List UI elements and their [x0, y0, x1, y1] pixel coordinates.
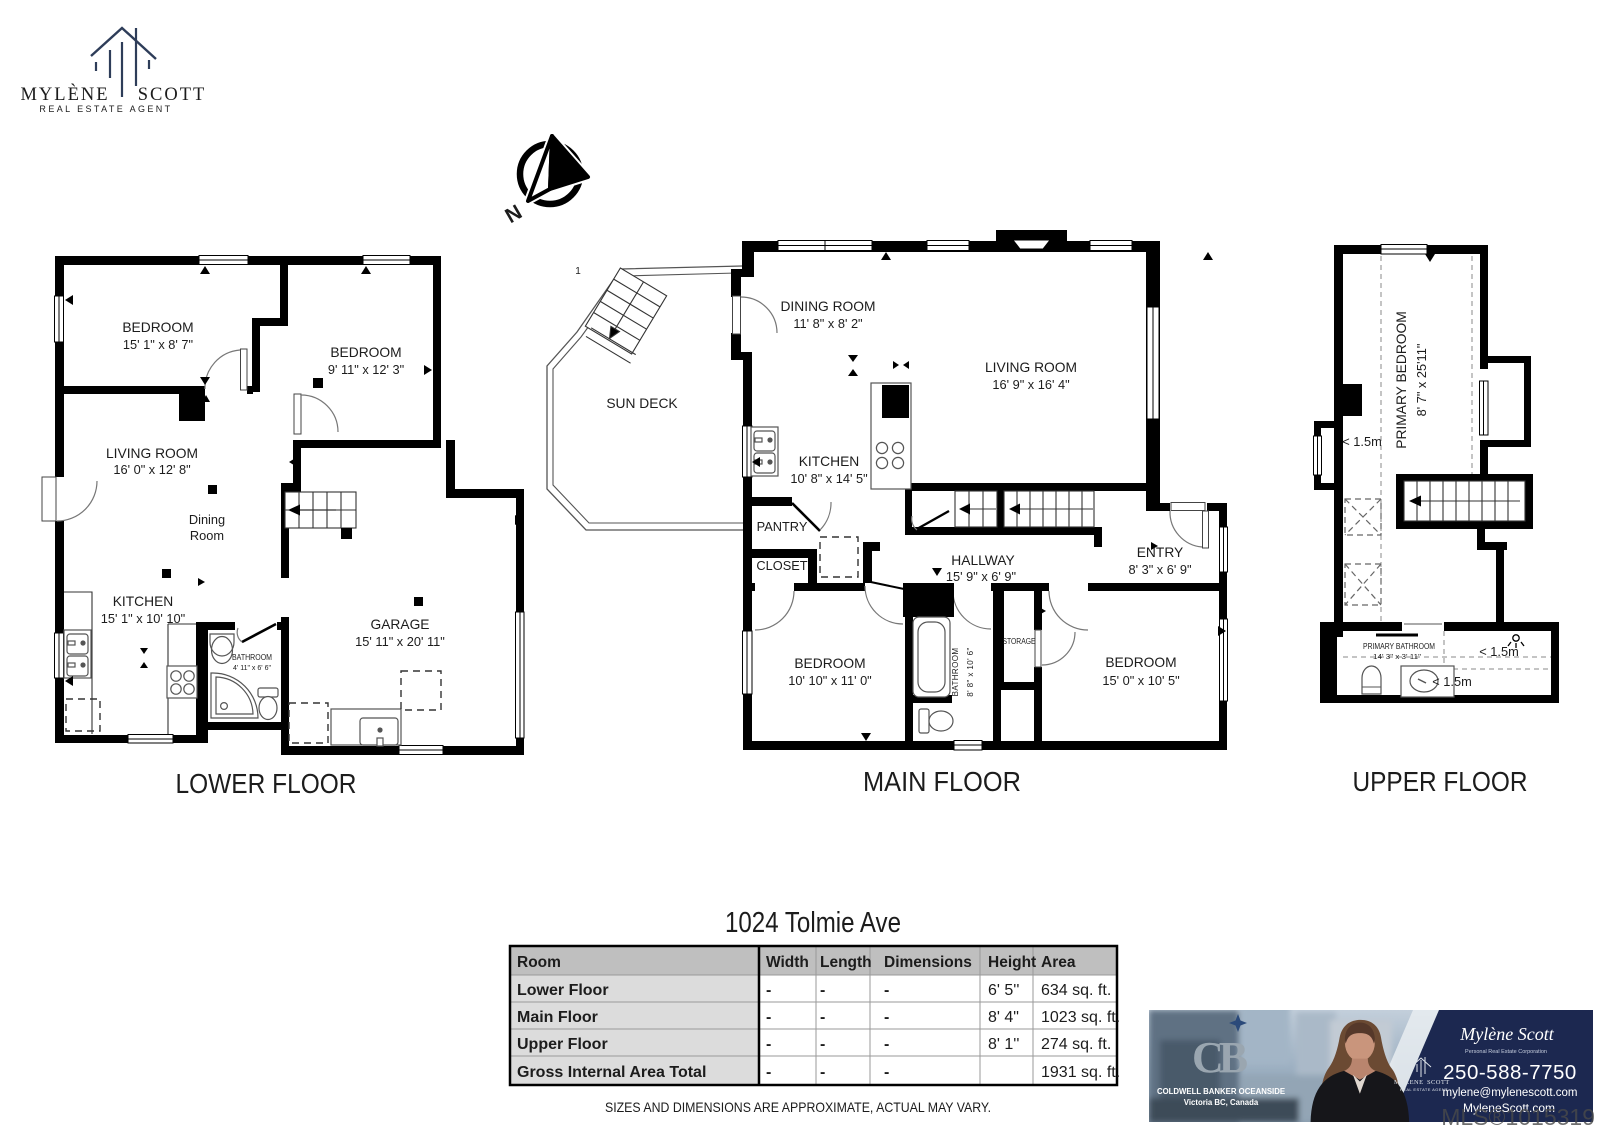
svg-text:CB: CB	[1192, 1033, 1248, 1082]
svg-text:CLOSET: CLOSET	[756, 558, 807, 573]
svg-text:mylene@mylenescott.com: mylene@mylenescott.com	[1442, 1087, 1577, 1099]
svg-text:BEDROOM: BEDROOM	[1105, 655, 1176, 670]
svg-text:16' 0" x 12' 8": 16' 0" x 12' 8"	[113, 462, 190, 477]
svg-text:PANTRY: PANTRY	[757, 519, 808, 534]
svg-text:8' 7" x 25'11": 8' 7" x 25'11"	[1414, 344, 1429, 417]
svg-text:GARAGE: GARAGE	[370, 617, 429, 632]
svg-text:Victoria BC, Canada: Victoria BC, Canada	[1184, 1098, 1259, 1107]
svg-text:Dining: Dining	[189, 512, 225, 527]
svg-text:4' 11" x 6' 6": 4' 11" x 6' 6"	[233, 665, 272, 672]
svg-text:-: -	[766, 982, 771, 999]
svg-text:PRIMARY BATHROOM: PRIMARY BATHROOM	[1363, 642, 1435, 651]
svg-text:-: -	[820, 982, 825, 999]
svg-text:HALLWAY: HALLWAY	[951, 553, 1014, 568]
svg-text:1023 sq. ft.: 1023 sq. ft.	[1041, 1009, 1120, 1026]
svg-text:11' 8" x 8' 2": 11' 8" x 8' 2"	[793, 316, 862, 331]
svg-text:Dimensions: Dimensions	[884, 954, 972, 971]
svg-text:SUN DECK: SUN DECK	[606, 396, 678, 411]
svg-text:COLDWELL BANKER OCEANSIDE: COLDWELL BANKER OCEANSIDE	[1157, 1087, 1285, 1096]
svg-text:15' 11" x 20' 11": 15' 11" x 20' 11"	[355, 634, 445, 649]
svg-text:REAL ESTATE AGENT: REAL ESTATE AGENT	[1400, 1087, 1448, 1092]
svg-text:8' 8" x 10' 6": 8' 8" x 10' 6"	[966, 647, 975, 696]
svg-text:-: -	[820, 1064, 825, 1081]
svg-text:UPPER FLOOR: UPPER FLOOR	[1353, 766, 1528, 797]
svg-text:Width: Width	[766, 954, 809, 971]
svg-text:-: -	[766, 1036, 771, 1053]
svg-text:1: 1	[575, 266, 581, 277]
svg-text:10' 8" x 14' 5": 10' 8" x 14' 5"	[790, 471, 867, 486]
svg-text:Personal Real Estate Corporati: Personal Real Estate Corporation	[1465, 1049, 1547, 1055]
svg-text:Upper Floor: Upper Floor	[517, 1036, 608, 1053]
svg-text:6' 5'': 6' 5''	[988, 982, 1019, 999]
svg-text:STORAGE: STORAGE	[1003, 637, 1036, 646]
svg-text:10' 10" x 11' 0": 10' 10" x 11' 0"	[788, 673, 871, 688]
svg-text:15' 1" x 8' 7": 15' 1" x 8' 7"	[123, 337, 193, 352]
svg-text:KITCHEN: KITCHEN	[799, 454, 860, 469]
svg-text:-: -	[820, 1036, 825, 1053]
svg-text:BATHROOM: BATHROOM	[951, 648, 960, 697]
svg-text:BATHROOM: BATHROOM	[232, 653, 272, 662]
svg-text:-: -	[884, 982, 889, 999]
svg-text:SIZES AND DIMENSIONS ARE APPRO: SIZES AND DIMENSIONS ARE APPROXIMATE, AC…	[605, 1099, 991, 1115]
svg-text:DINING ROOM: DINING ROOM	[780, 299, 875, 314]
svg-text:REAL ESTATE AGENT: REAL ESTATE AGENT	[39, 104, 172, 114]
svg-text:15' 1" x 10' 10": 15' 1" x 10' 10"	[101, 611, 185, 626]
svg-text:Area: Area	[1041, 954, 1076, 971]
svg-text:1024 Tolmie Ave: 1024 Tolmie Ave	[725, 907, 901, 939]
svg-text:< 1.5m: < 1.5m	[1479, 644, 1518, 659]
svg-text:274 sq. ft.: 274 sq. ft.	[1041, 1036, 1111, 1053]
svg-text:8' 3" x 6' 9": 8' 3" x 6' 9"	[1128, 562, 1191, 577]
svg-text:Room: Room	[190, 528, 224, 543]
svg-text:Room: Room	[517, 954, 561, 971]
svg-text:< 1.5m: < 1.5m	[1432, 674, 1471, 689]
svg-text:MAIN FLOOR: MAIN FLOOR	[863, 766, 1021, 797]
svg-text:MYLENE: MYLENE	[1394, 1079, 1423, 1086]
svg-text:LIVING ROOM: LIVING ROOM	[985, 360, 1077, 375]
svg-text:634 sq. ft.: 634 sq. ft.	[1041, 982, 1111, 999]
svg-text:8' 1'': 8' 1''	[988, 1036, 1019, 1053]
svg-text:9' 11" x 12' 3": 9' 11" x 12' 3"	[328, 362, 404, 377]
svg-text:1931 sq. ft.: 1931 sq. ft.	[1041, 1064, 1120, 1081]
svg-text:Height: Height	[988, 954, 1036, 971]
svg-text:-: -	[820, 1009, 825, 1026]
svg-text:BEDROOM: BEDROOM	[330, 345, 401, 360]
svg-text:PRIMARY BEDROOM: PRIMARY BEDROOM	[1394, 311, 1409, 448]
svg-text:-: -	[884, 1064, 889, 1081]
svg-text:MYLÈNE: MYLÈNE	[20, 83, 109, 105]
svg-text:8' 4": 8' 4"	[988, 1009, 1019, 1026]
svg-text:-: -	[884, 1036, 889, 1053]
svg-text:LOWER FLOOR: LOWER FLOOR	[176, 768, 357, 799]
svg-text:250-588-7750: 250-588-7750	[1443, 1061, 1577, 1084]
svg-text:KITCHEN: KITCHEN	[113, 594, 174, 609]
svg-text:Lower Floor: Lower Floor	[517, 982, 609, 999]
svg-text:SCOTT: SCOTT	[138, 85, 207, 105]
svg-text:16' 9" x 16' 4": 16' 9" x 16' 4"	[992, 377, 1069, 392]
svg-text:Main Floor: Main Floor	[517, 1009, 598, 1026]
svg-text:< 1.5m: < 1.5m	[1342, 434, 1381, 449]
svg-text:15' 9" x 6' 9": 15' 9" x 6' 9"	[946, 569, 1016, 584]
svg-text:-: -	[766, 1064, 771, 1081]
svg-text:Gross Internal Area Total: Gross Internal Area Total	[517, 1064, 706, 1081]
svg-text:14' 3" x 3' 11": 14' 3" x 3' 11"	[1373, 654, 1422, 661]
svg-text:-: -	[766, 1009, 771, 1026]
svg-text:LIVING ROOM: LIVING ROOM	[106, 446, 198, 461]
svg-text:ENTRY: ENTRY	[1137, 545, 1184, 560]
svg-text:Mylène Scott: Mylène Scott	[1459, 1024, 1554, 1044]
svg-text:Length: Length	[820, 954, 872, 971]
svg-text:BEDROOM: BEDROOM	[794, 656, 865, 671]
svg-text:BEDROOM: BEDROOM	[122, 320, 193, 335]
svg-text:MLS®1015319: MLS®1015319	[1441, 1104, 1595, 1130]
svg-text:15' 0" x 10' 5": 15' 0" x 10' 5"	[1102, 673, 1179, 688]
svg-text:-: -	[884, 1009, 889, 1026]
